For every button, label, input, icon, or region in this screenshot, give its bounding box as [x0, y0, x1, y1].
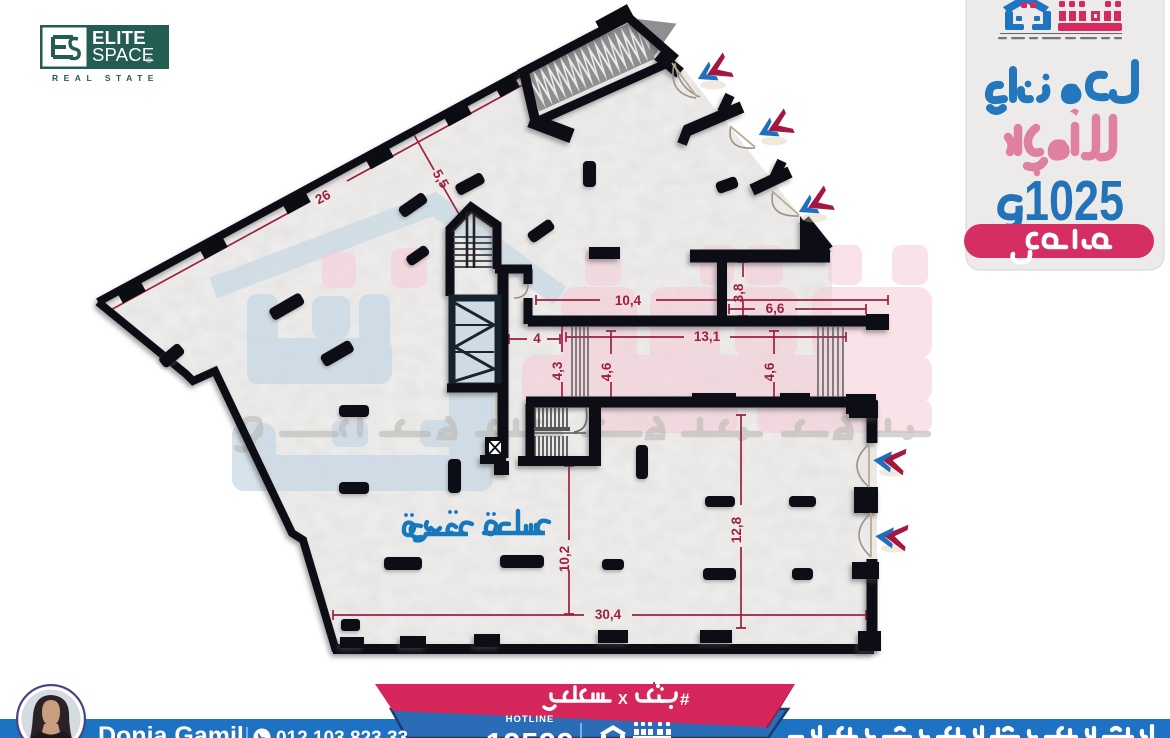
svg-text:19599: 19599 [486, 726, 575, 738]
svg-text:1025: 1025 [1024, 169, 1124, 233]
svg-text:4,3: 4,3 [550, 361, 565, 380]
svg-text:HOTLINE: HOTLINE [506, 714, 555, 725]
svg-text:4,6: 4,6 [599, 362, 614, 381]
svg-text:REAL STATE: REAL STATE [52, 73, 159, 83]
svg-text:®: ® [146, 56, 152, 65]
svg-text:#: # [680, 690, 690, 709]
svg-text:Donia Gamil: Donia Gamil [98, 722, 244, 738]
svg-text:4,6: 4,6 [762, 362, 777, 381]
svg-text:10,4: 10,4 [615, 293, 642, 308]
svg-text:SPACE: SPACE [92, 44, 154, 65]
svg-text:012 103 823 33: 012 103 823 33 [276, 728, 408, 738]
svg-text:6,6: 6,6 [766, 301, 785, 316]
svg-text:X: X [618, 692, 628, 708]
svg-text:10,2: 10,2 [557, 546, 572, 572]
svg-text:12,8: 12,8 [729, 516, 744, 543]
svg-text:4: 4 [533, 331, 541, 346]
svg-text:13,1: 13,1 [694, 329, 721, 344]
svg-text:3,8: 3,8 [731, 283, 746, 302]
svg-text:30,4: 30,4 [595, 607, 622, 622]
